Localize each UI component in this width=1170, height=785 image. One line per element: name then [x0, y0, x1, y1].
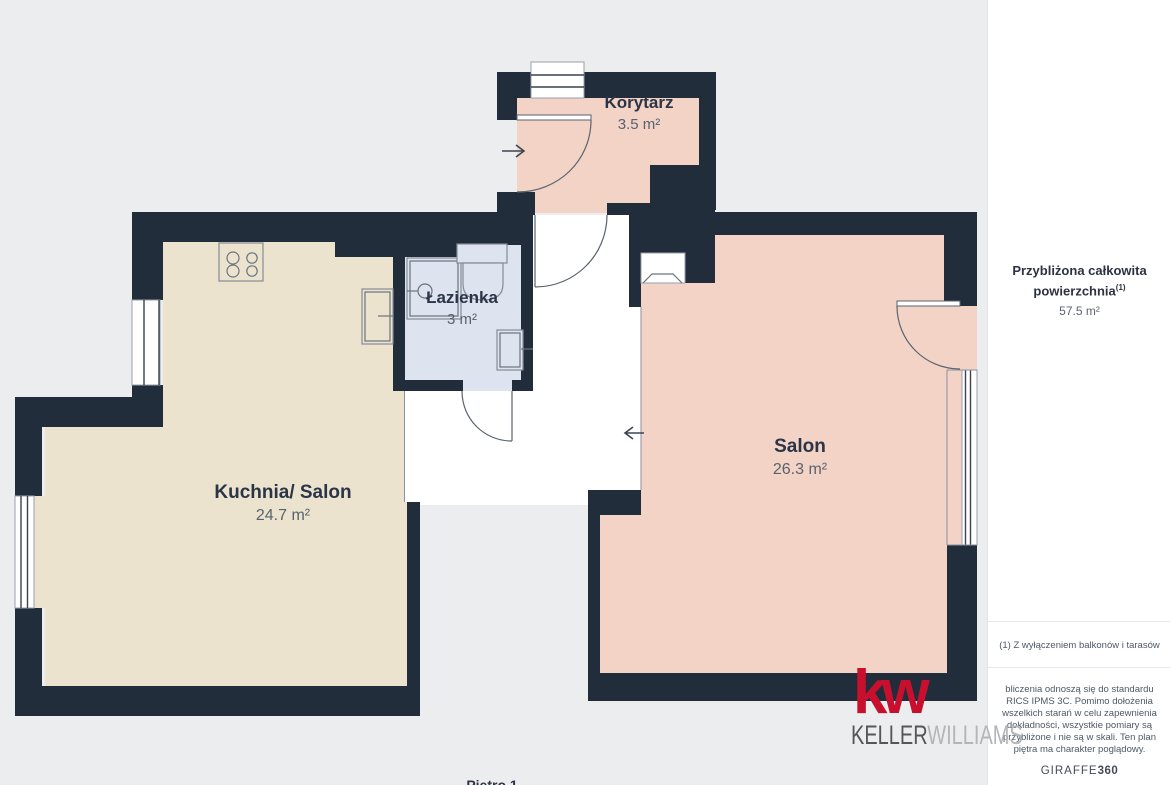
- room-name: Łazienka: [426, 288, 498, 308]
- kitchen-sink-icon: [362, 289, 393, 344]
- total-area-title-text: Przybliżona całkowita powierzchnia: [1012, 263, 1146, 298]
- giraffe360-logo: GIRAFFE360: [988, 765, 1170, 777]
- wall-niche: [641, 253, 685, 283]
- room-area: 26.3 m²: [773, 461, 827, 479]
- room-area: 3.5 m²: [605, 116, 674, 133]
- giraffe-text: GIRAFFE: [1041, 765, 1098, 777]
- kuchnia-window-upper: [132, 300, 160, 385]
- keller-williams-logo: kw KELLERWILLIAMS: [851, 664, 1061, 749]
- hall-floor: [533, 215, 629, 505]
- kw-monogram-icon: kw: [853, 664, 1061, 722]
- total-area-title: Przybliżona całkowita powierzchnia(1): [988, 262, 1170, 299]
- floorplan-page: Korytarz 3.5 m² Łazienka 3 m² Kuchnia/ S…: [0, 0, 1170, 785]
- kuchnia-window-sill: [34, 496, 45, 608]
- korytarz-window: [531, 62, 584, 98]
- footnote-text: (1) Z wyłączeniem balkonów i tarasów: [988, 640, 1170, 651]
- room-label-korytarz: Korytarz 3.5 m²: [605, 93, 674, 133]
- keller-williams-wordmark: KELLERWILLIAMS: [851, 722, 1006, 749]
- kuchnia-window-lower: [15, 496, 34, 608]
- total-area-value: 57.5 m²: [988, 304, 1170, 318]
- divider: [988, 621, 1170, 622]
- kuchnia-floor: [45, 242, 407, 686]
- balcony-door-opening: [947, 306, 977, 370]
- salon-window-sill: [947, 370, 962, 545]
- room-label-kuchnia: Kuchnia/ Salon 24.7 m²: [214, 482, 351, 525]
- floor-caption: Piętro 1: [466, 777, 517, 785]
- room-name: Kuchnia/ Salon: [214, 482, 351, 504]
- giraffe-360-text: 360: [1098, 765, 1119, 777]
- room-name: Salon: [773, 436, 827, 458]
- room-label-salon: Salon 26.3 m²: [773, 436, 827, 479]
- room-area: 3 m²: [426, 311, 498, 328]
- room-name: Korytarz: [605, 93, 674, 113]
- williams-text: WILLIAMS: [927, 720, 1022, 750]
- salon-doorway-gap: [629, 307, 641, 490]
- hall-floor-lower: [405, 391, 533, 505]
- stove-icon: [219, 243, 263, 281]
- room-area: 24.7 m²: [214, 507, 351, 525]
- room-label-lazienka: Łazienka 3 m²: [426, 288, 498, 328]
- room-floors: [34, 98, 977, 686]
- keller-text: KELLER: [851, 720, 927, 750]
- footnote-marker: (1): [1116, 283, 1126, 292]
